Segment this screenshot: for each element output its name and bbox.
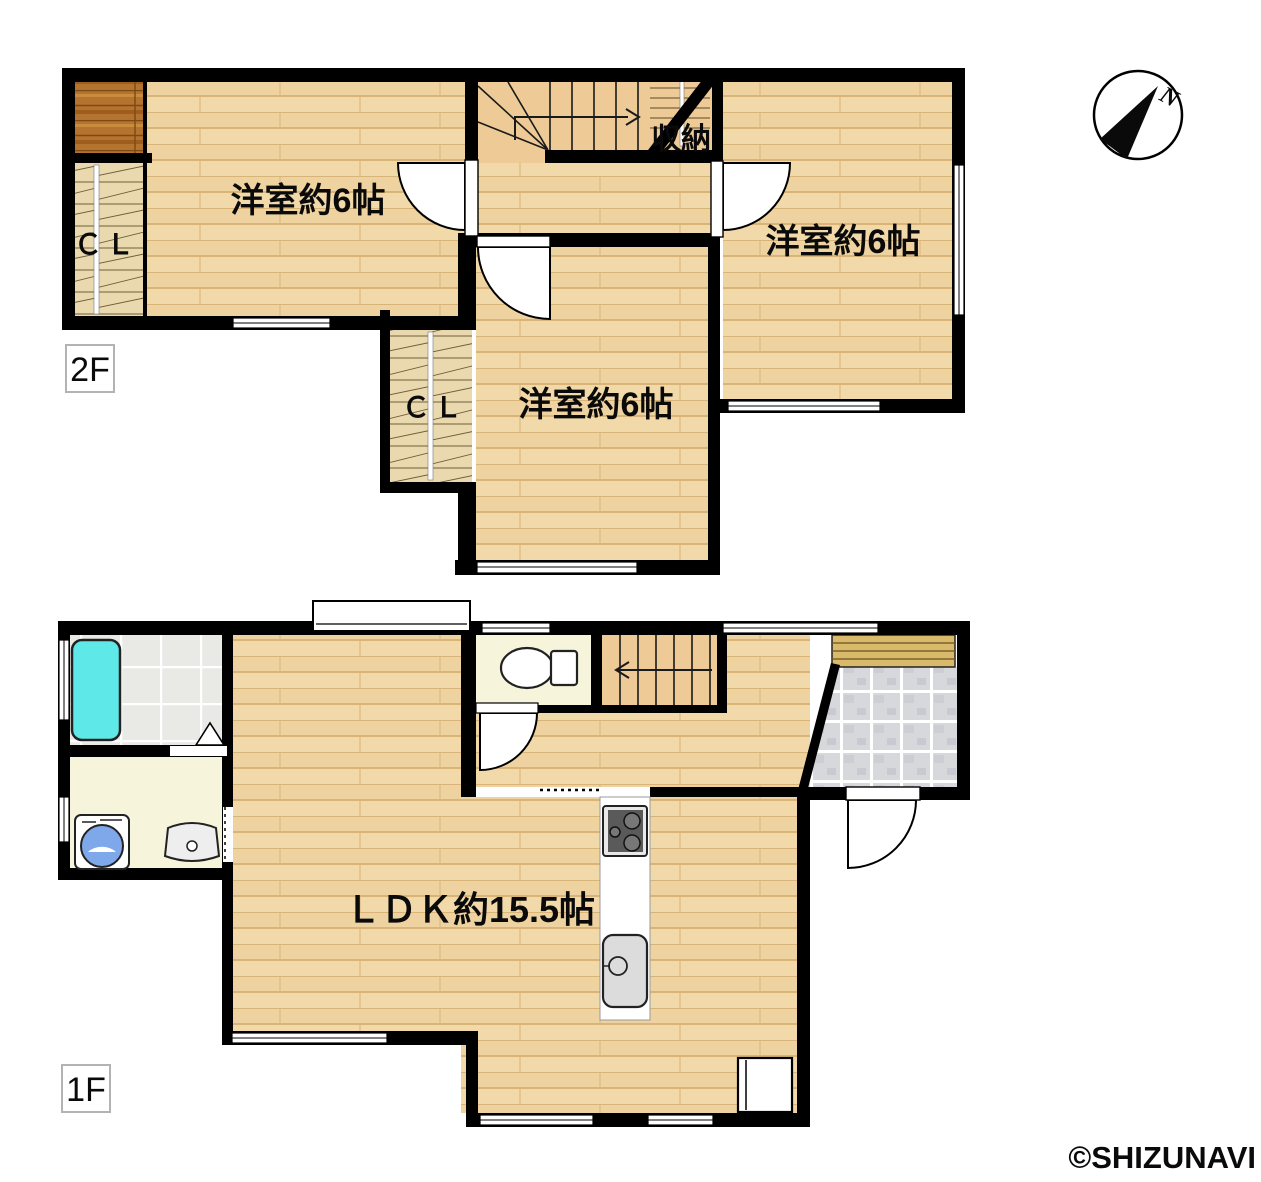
ldk-left-floor: [233, 635, 461, 1031]
ldk-label: ＬＤＫ約15.5帖: [345, 889, 595, 930]
toilet-bowl: [501, 648, 553, 688]
floor-plan-svg: 洋室約6帖 洋室約6帖 洋室約6帖 収納 ＣＬ ＣＬ 2F: [0, 0, 1261, 1182]
door-arc-entry: [848, 800, 916, 868]
washing-machine-lid: [81, 825, 123, 867]
bay-window: [313, 601, 470, 631]
hall-ldk-opening: [476, 787, 540, 797]
room-2f-nw-label: 洋室約6帖: [231, 181, 386, 220]
hallway-2f-floor: [478, 163, 712, 233]
watermark-text: ©SHIZUNAVI: [1068, 1140, 1256, 1175]
door-leaf-room-ne: [711, 161, 723, 237]
room-2f-ne-label: 洋室約6帖: [766, 222, 921, 261]
door-leaf-entry: [846, 787, 920, 800]
room-2f-s-label: 洋室約6帖: [519, 385, 674, 424]
closet-s-label: ＣＬ: [402, 392, 466, 423]
floor-2f-plan: 洋室約6帖 洋室約6帖 洋室約6帖 収納 ＣＬ ＣＬ 2F: [62, 68, 965, 575]
compass-icon: N: [1094, 71, 1184, 159]
washroom-sink-drain: [187, 841, 197, 851]
bathtub: [72, 640, 120, 740]
storage-label: 収納: [651, 123, 711, 156]
floor-tag-2f: 2F: [70, 351, 110, 389]
hall-entry-floor: [727, 635, 810, 787]
kitchen-faucet: [609, 957, 627, 975]
door-leaf-room-nw: [465, 160, 478, 236]
floor-1f-plan: ＬＤＫ約15.5帖 1F: [58, 601, 970, 1127]
door-leaf-room-s: [477, 236, 550, 247]
floor-plan-page: 洋室約6帖 洋室約6帖 洋室約6帖 収納 ＣＬ ＣＬ 2F: [0, 0, 1261, 1182]
closet-nw-label: ＣＬ: [74, 229, 138, 260]
kitchen-pass-opening: [540, 787, 602, 797]
floor-tag-1f: 1F: [66, 1071, 106, 1109]
storage-closet-dark: [75, 82, 143, 153]
door-leaf-toilet: [476, 703, 538, 713]
bathroom-door-opening: [170, 746, 227, 756]
toilet-tank: [551, 651, 577, 685]
